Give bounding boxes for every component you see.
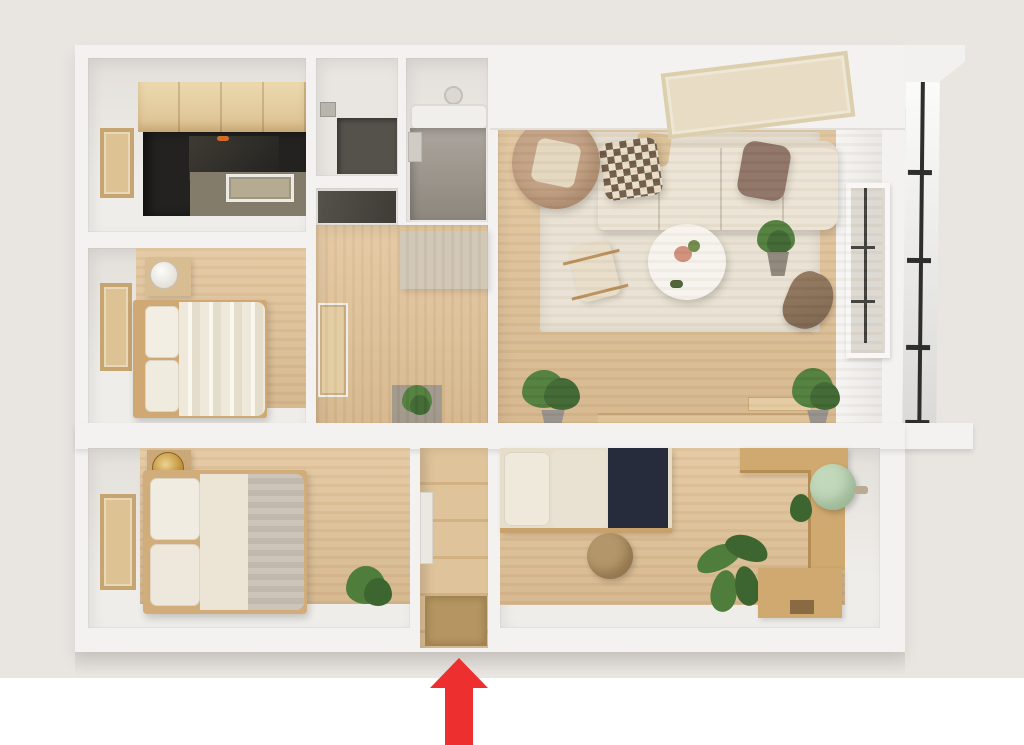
room-storage-nook [316, 188, 398, 225]
room-hallway [316, 225, 488, 428]
room-bathroom [406, 58, 488, 222]
plant-foliage [544, 378, 580, 410]
bedroom-bl-wall-frame [100, 494, 136, 590]
plant-pot [765, 252, 791, 276]
balcony-railing [902, 82, 940, 440]
railing-bar [908, 170, 932, 175]
doormat [425, 596, 487, 646]
window-mullion [864, 188, 867, 343]
cooktop [226, 174, 294, 202]
desk-plant [790, 494, 812, 522]
railing-bar [906, 345, 930, 350]
cabinet-seams [138, 82, 306, 132]
railing-bar [907, 258, 931, 263]
swivel-armchair [512, 117, 600, 209]
mid-dividing-wall [75, 423, 905, 449]
navy-blanket [608, 448, 668, 530]
plant-foliage [767, 230, 791, 254]
bottom-wall-right [488, 628, 905, 652]
room-living [498, 125, 882, 428]
entrance-door-frame [420, 492, 433, 564]
bed-striped-duvet [179, 302, 265, 416]
stove-indicator-light [217, 136, 229, 141]
bed-gray-throw [143, 470, 307, 614]
desk-foot [758, 568, 842, 618]
bed-pillow [504, 452, 550, 526]
armchair-cushion [530, 137, 582, 189]
bedroom-ml-wall-frame [100, 283, 132, 371]
bed-footboard [500, 528, 672, 533]
bed-navy [500, 448, 672, 532]
chair-arm [854, 486, 868, 494]
brown-pillow [736, 139, 793, 202]
bed-pillow [552, 450, 606, 528]
desk-foot-slot [790, 600, 814, 614]
plant-foliage [410, 395, 430, 415]
mint-ball-chair [810, 464, 856, 510]
floor-plant-right [790, 368, 848, 426]
building-shadow [75, 650, 905, 676]
window-mullion [851, 246, 875, 249]
wall-mirror [408, 132, 422, 162]
hall-counter [400, 228, 488, 289]
round-ottoman [587, 533, 633, 579]
hall-door [318, 303, 348, 397]
checkered-pillow [598, 136, 664, 202]
skylight-panel [661, 51, 856, 139]
bed-duvet-cream [200, 474, 250, 610]
bed-throw-gray [248, 474, 304, 610]
room-utility [316, 58, 398, 176]
bed-pillow [145, 360, 179, 412]
floor-plant-left [522, 366, 588, 428]
table-side-plant [753, 220, 801, 278]
mid-wall-extension [905, 423, 973, 449]
table-item [670, 280, 683, 288]
room-entrance-hall [420, 448, 488, 648]
living-ceiling-band [490, 45, 905, 130]
table-sprig [688, 240, 700, 252]
utility-dark-floor [337, 118, 397, 174]
kitchen-cabinets [138, 82, 306, 132]
hall-plant [398, 383, 436, 421]
bedroom-bl-plant [344, 566, 398, 622]
bed-pillow [145, 306, 179, 358]
storage-dark-tile [318, 191, 396, 223]
room-bedroom-mid-left [88, 248, 306, 428]
entrance-arrow-shaft [445, 686, 473, 745]
bathtub [410, 104, 488, 130]
ceiling-lamp [444, 86, 463, 105]
plant-foliage [810, 382, 840, 410]
bottom-wall-left [75, 628, 418, 652]
room-bedroom-bottom-right [500, 448, 880, 628]
window [846, 183, 890, 358]
wall-fixture [320, 102, 336, 117]
room-bedroom-bottom-left [88, 448, 410, 628]
bottom-white-band [0, 678, 1024, 745]
floor-plan-scene [0, 0, 1024, 745]
bed-striped [133, 300, 267, 418]
kitchen-island-top [190, 172, 306, 216]
table-lamp-white [150, 261, 178, 289]
room-kitchen [88, 58, 306, 232]
bed-pillow [150, 478, 200, 540]
plant-foliage [364, 578, 392, 606]
kitchen-wall-frame [100, 128, 134, 198]
coffee-table [648, 224, 726, 300]
bed-pillow [150, 544, 200, 606]
window-mullion [851, 300, 875, 303]
